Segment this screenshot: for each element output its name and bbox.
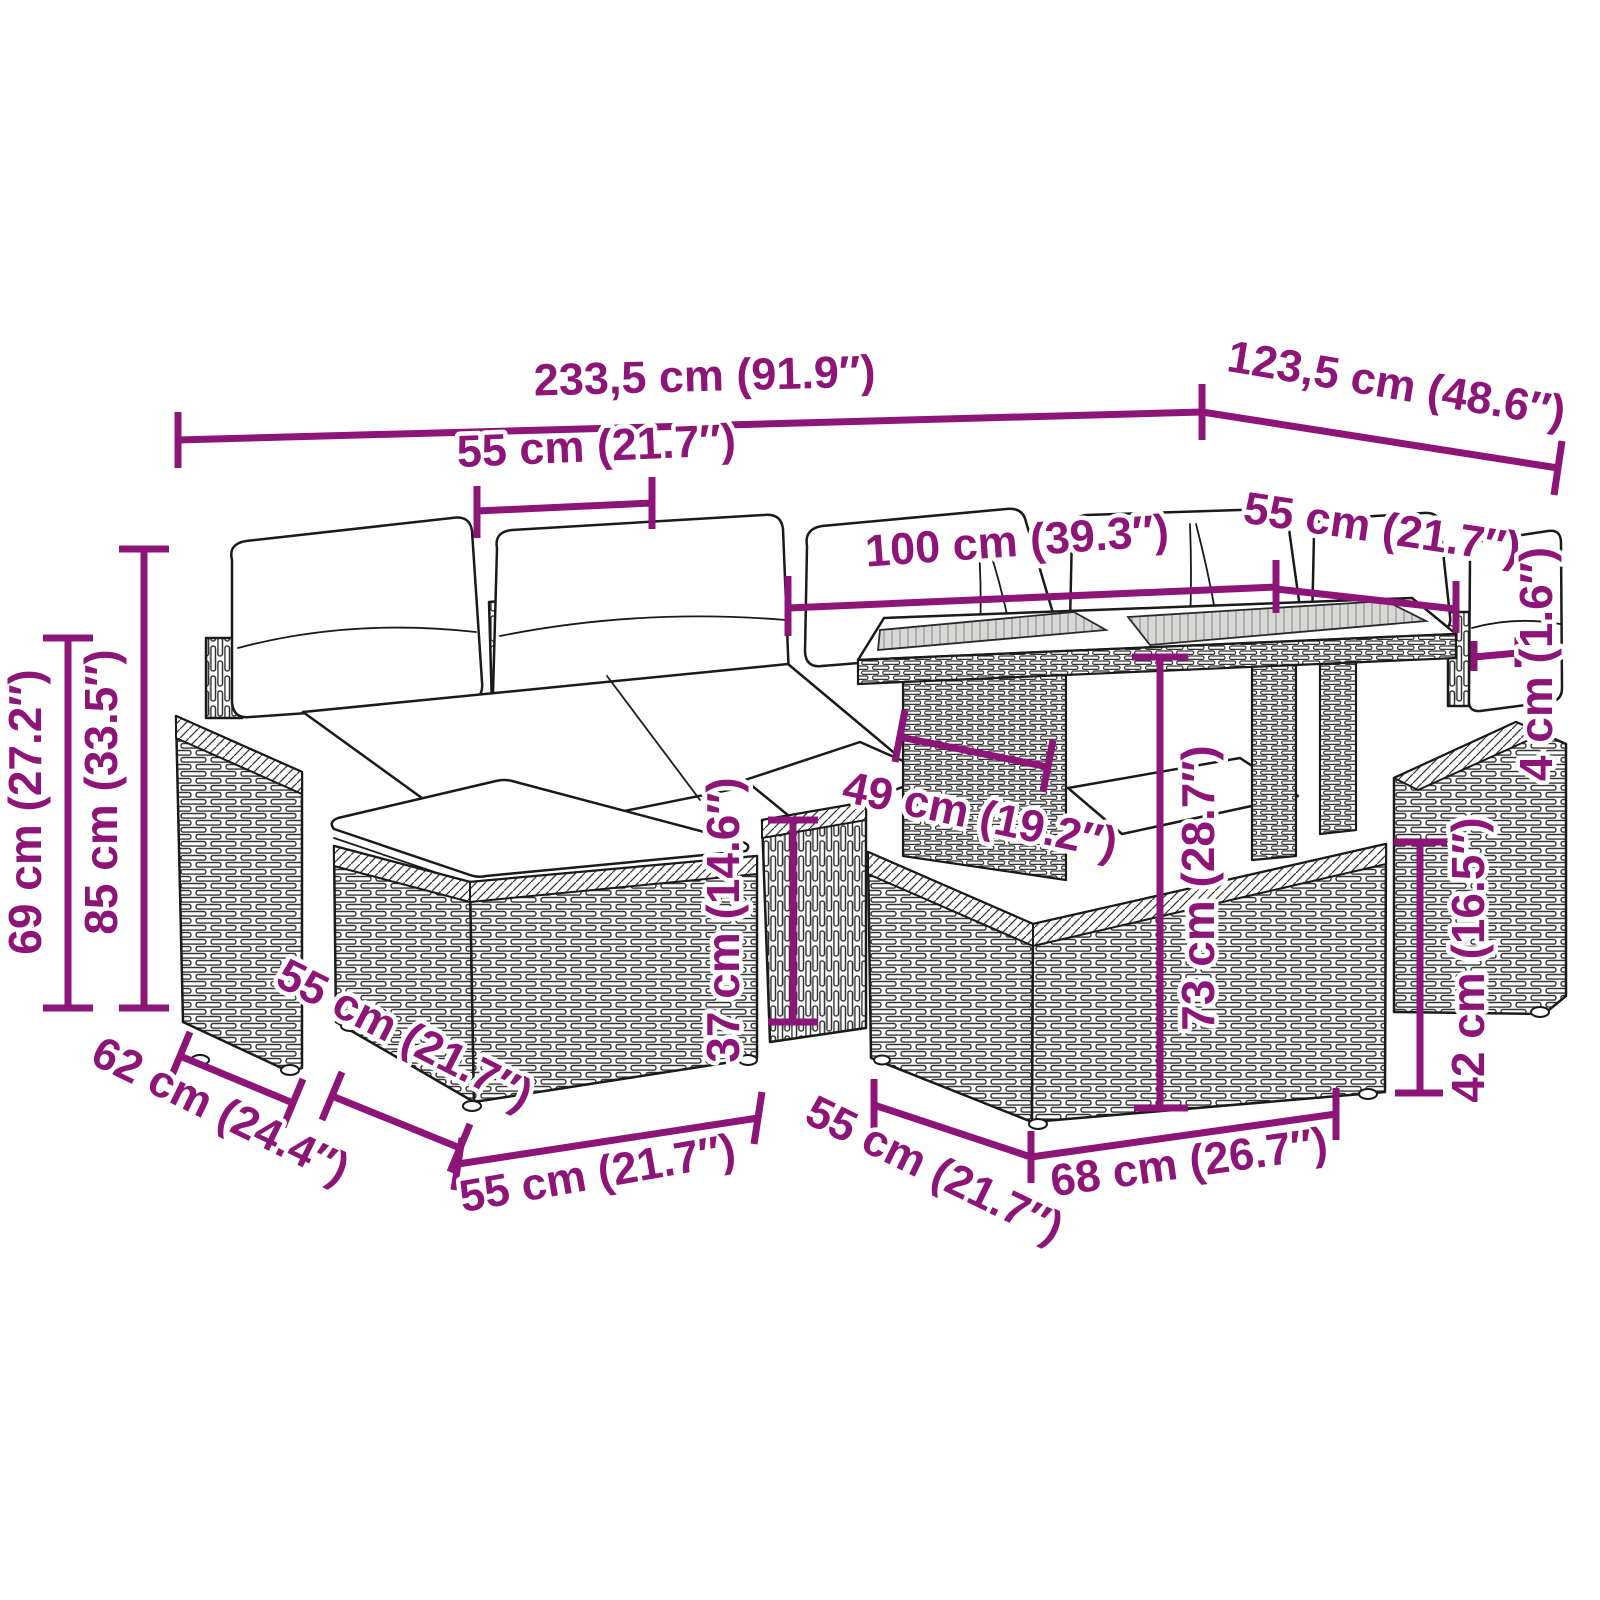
dim-ottoman-left-width-label: 55 cm (21.7″) (455, 1123, 739, 1222)
dim-back-height-label: 85 cm (33.5″) (75, 649, 127, 934)
dim-overall-depth: 123,5 cm (48.6″) (1202, 330, 1569, 495)
dim-seat-base-height-label: 37 cm (14.6″) (697, 777, 749, 1062)
dim-back-height: 85 cm (33.5″) (75, 549, 169, 1008)
dim-table-height-label: 73 cm (28.7″) (1172, 745, 1224, 1030)
dim-armrest-depth: 62 cm (24.4″) (84, 1026, 357, 1194)
dim-ottoman-right-width-label: 68 cm (26.7″) (1047, 1117, 1331, 1206)
dim-ottoman-left-width: 55 cm (21.7″) (454, 1092, 762, 1222)
table-legs (903, 657, 1356, 880)
dim-armrest-height-label: 69 cm (27.2″) (0, 669, 51, 954)
left-armrest (176, 716, 302, 1075)
pillow (231, 518, 482, 718)
dim-seat-width-left-label: 55 cm (21.7″) (456, 414, 737, 477)
dim-ottoman-right-height-label: 42 cm (16.5″) (1442, 817, 1494, 1102)
ottoman-right (868, 844, 1386, 1129)
dim-overall-width-label: 233,5 cm (91.9″) (533, 346, 876, 406)
dimension-diagram: 233,5 cm (91.9″) 123,5 cm (48.6″) 55 cm … (0, 0, 1600, 1600)
corner-seat-base (762, 802, 866, 1042)
ottoman-left (332, 780, 757, 1111)
dim-armrest-depth-label: 62 cm (24.4″) (84, 1026, 357, 1194)
diagram-canvas: 233,5 cm (91.9″) 123,5 cm (48.6″) 55 cm … (0, 0, 1600, 1600)
dim-tabletop-thickness-label: 4 cm (1.6″) (1510, 547, 1562, 781)
